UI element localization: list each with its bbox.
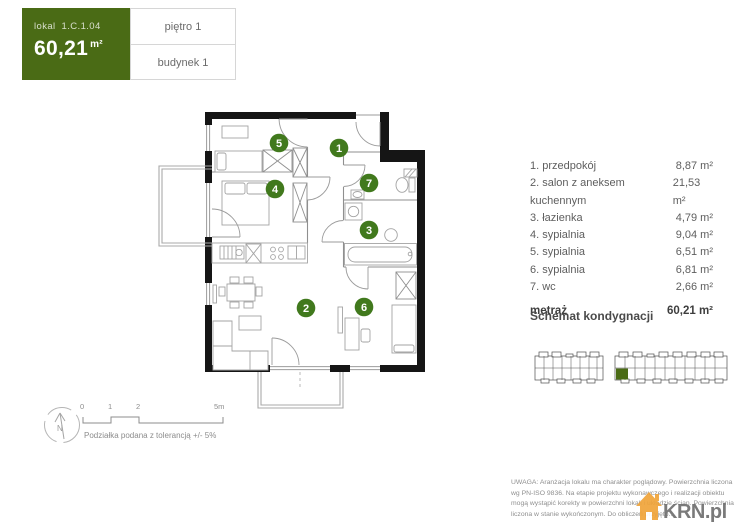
room-list: 1. przedpokój 8,87 m² 2. salon z aneksem… xyxy=(530,158,713,320)
building-outline-right xyxy=(615,352,727,383)
room-label: 1. przedpokój xyxy=(530,158,596,175)
svg-text:2: 2 xyxy=(303,303,309,315)
room-label: 2. salon z aneksem kuchennym xyxy=(530,175,673,210)
room-area: 9,04 m² xyxy=(676,227,713,244)
unit-card: lokal1.C.1.04 60,21m² xyxy=(22,8,130,80)
room-label: 6. sypialnia xyxy=(530,262,585,279)
room-row: 3. łazienka 4,79 m² xyxy=(530,210,713,227)
floor-cell: piętro 1 xyxy=(131,9,235,44)
room-row: 5. sypialnia 6,51 m² xyxy=(530,244,713,261)
room-area: 4,79 m² xyxy=(676,210,713,227)
svg-text:5: 5 xyxy=(276,138,282,150)
room-label: 3. łazienka xyxy=(530,210,583,227)
scale-tick-label: 0 xyxy=(80,402,84,411)
krn-logo: KRN.pl xyxy=(634,484,740,526)
room-badge: 2 xyxy=(297,299,316,318)
room-badge: 7 xyxy=(360,174,379,193)
unit-id-line: lokal1.C.1.04 xyxy=(34,21,130,32)
room-label: 4. sypialnia xyxy=(530,227,585,244)
unit-number: 1.C.1.04 xyxy=(62,21,101,32)
unit-area-unit: m² xyxy=(90,39,103,50)
room-area: 6,81 m² xyxy=(676,262,713,279)
house-icon xyxy=(636,492,662,520)
total-area: 60,21 m² xyxy=(667,302,713,320)
room-row: 7. wc 2,66 m² xyxy=(530,279,713,296)
furniture xyxy=(212,126,417,370)
logo-text: KRN.pl xyxy=(663,501,727,523)
svg-text:1: 1 xyxy=(336,143,342,155)
scale-tick-label: 1 xyxy=(108,402,112,411)
room-row: 4. sypialnia 9,04 m² xyxy=(530,227,713,244)
room-badge: 4 xyxy=(266,180,285,199)
room-area: 2,66 m² xyxy=(676,279,713,296)
room-badge: 3 xyxy=(360,221,379,240)
unit-area-value: 60,21 xyxy=(34,37,88,60)
room-row: 6. sypialnia 6,81 m² xyxy=(530,262,713,279)
building-cell: budynek 1 xyxy=(131,44,235,80)
highlighted-unit xyxy=(616,369,628,380)
scale-tick-label: 5m xyxy=(214,402,224,411)
floor-plan: 1 2 3 4 5 6 7 xyxy=(148,95,480,410)
room-area: 21,53 m² xyxy=(673,175,713,210)
room-row: 1. przedpokój 8,87 m² xyxy=(530,158,713,175)
svg-text:6: 6 xyxy=(361,302,367,314)
room-label: 5. sypialnia xyxy=(530,244,585,261)
svg-text:N: N xyxy=(57,424,63,433)
unit-label: lokal xyxy=(34,21,56,32)
schematic-diagram xyxy=(531,346,731,390)
unit-meta-table: piętro 1 budynek 1 xyxy=(130,8,236,80)
room-area: 6,51 m² xyxy=(676,244,713,261)
scale-tick-label: 2 xyxy=(136,402,140,411)
room-label: 7. wc xyxy=(530,279,556,296)
svg-text:3: 3 xyxy=(366,225,372,237)
building-outline-left xyxy=(535,352,603,383)
room-badge: 5 xyxy=(270,134,289,153)
scale-bar: 0 1 2 5m xyxy=(76,400,232,430)
unit-area: 60,21m² xyxy=(34,37,130,61)
room-row: 2. salon z aneksem kuchennym 21,53 m² xyxy=(530,175,713,210)
room-area: 8,87 m² xyxy=(676,158,713,175)
svg-text:4: 4 xyxy=(272,184,279,196)
svg-text:7: 7 xyxy=(366,178,372,190)
schematic-title: Schemat kondygnacji xyxy=(530,309,653,323)
scale-note: Podziałka podana z tolerancją +/- 5% xyxy=(84,431,216,440)
room-badge: 6 xyxy=(355,298,374,317)
room-badge: 1 xyxy=(330,139,349,158)
